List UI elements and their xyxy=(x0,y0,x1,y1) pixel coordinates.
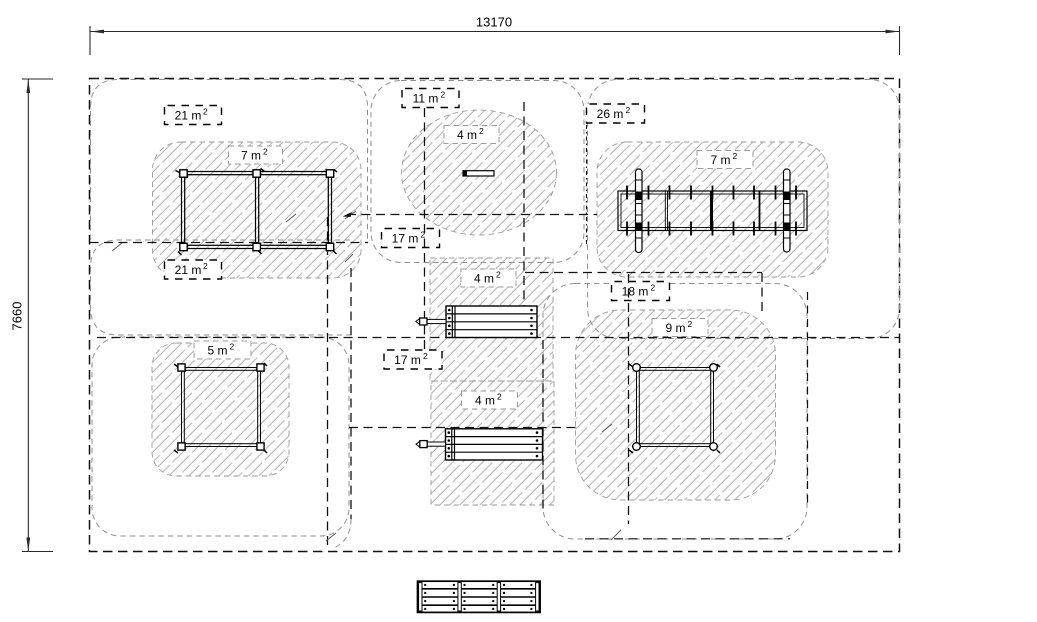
svg-text:17 m: 17 m xyxy=(394,353,421,367)
svg-text:4 m: 4 m xyxy=(457,128,477,142)
svg-text:4 m: 4 m xyxy=(474,272,494,286)
svg-text:2: 2 xyxy=(230,342,235,352)
svg-text:2: 2 xyxy=(423,351,428,361)
svg-text:11 m: 11 m xyxy=(413,92,439,106)
svg-text:2: 2 xyxy=(203,261,208,271)
svg-text:2: 2 xyxy=(441,90,446,100)
svg-text:2: 2 xyxy=(651,283,656,293)
svg-text:17 m: 17 m xyxy=(392,232,419,246)
svg-text:4 m: 4 m xyxy=(475,394,495,408)
svg-text:21 m: 21 m xyxy=(175,109,202,123)
svg-text:21 m: 21 m xyxy=(175,263,202,277)
svg-text:5 m: 5 m xyxy=(207,344,227,358)
svg-text:2: 2 xyxy=(497,392,502,402)
svg-text:2: 2 xyxy=(203,107,208,117)
svg-text:2: 2 xyxy=(688,319,693,329)
svg-text:18 m: 18 m xyxy=(622,285,649,299)
svg-text:26 m: 26 m xyxy=(597,107,624,121)
svg-text:2: 2 xyxy=(626,105,631,115)
svg-text:7660: 7660 xyxy=(10,302,25,331)
svg-text:7 m: 7 m xyxy=(241,149,261,163)
svg-text:9 m: 9 m xyxy=(665,321,685,335)
svg-text:7 m: 7 m xyxy=(710,153,730,167)
svg-text:2: 2 xyxy=(733,151,738,161)
svg-text:2: 2 xyxy=(479,126,484,136)
svg-text:2: 2 xyxy=(496,270,501,280)
svg-text:2: 2 xyxy=(263,147,268,157)
svg-text:13170: 13170 xyxy=(476,15,512,30)
